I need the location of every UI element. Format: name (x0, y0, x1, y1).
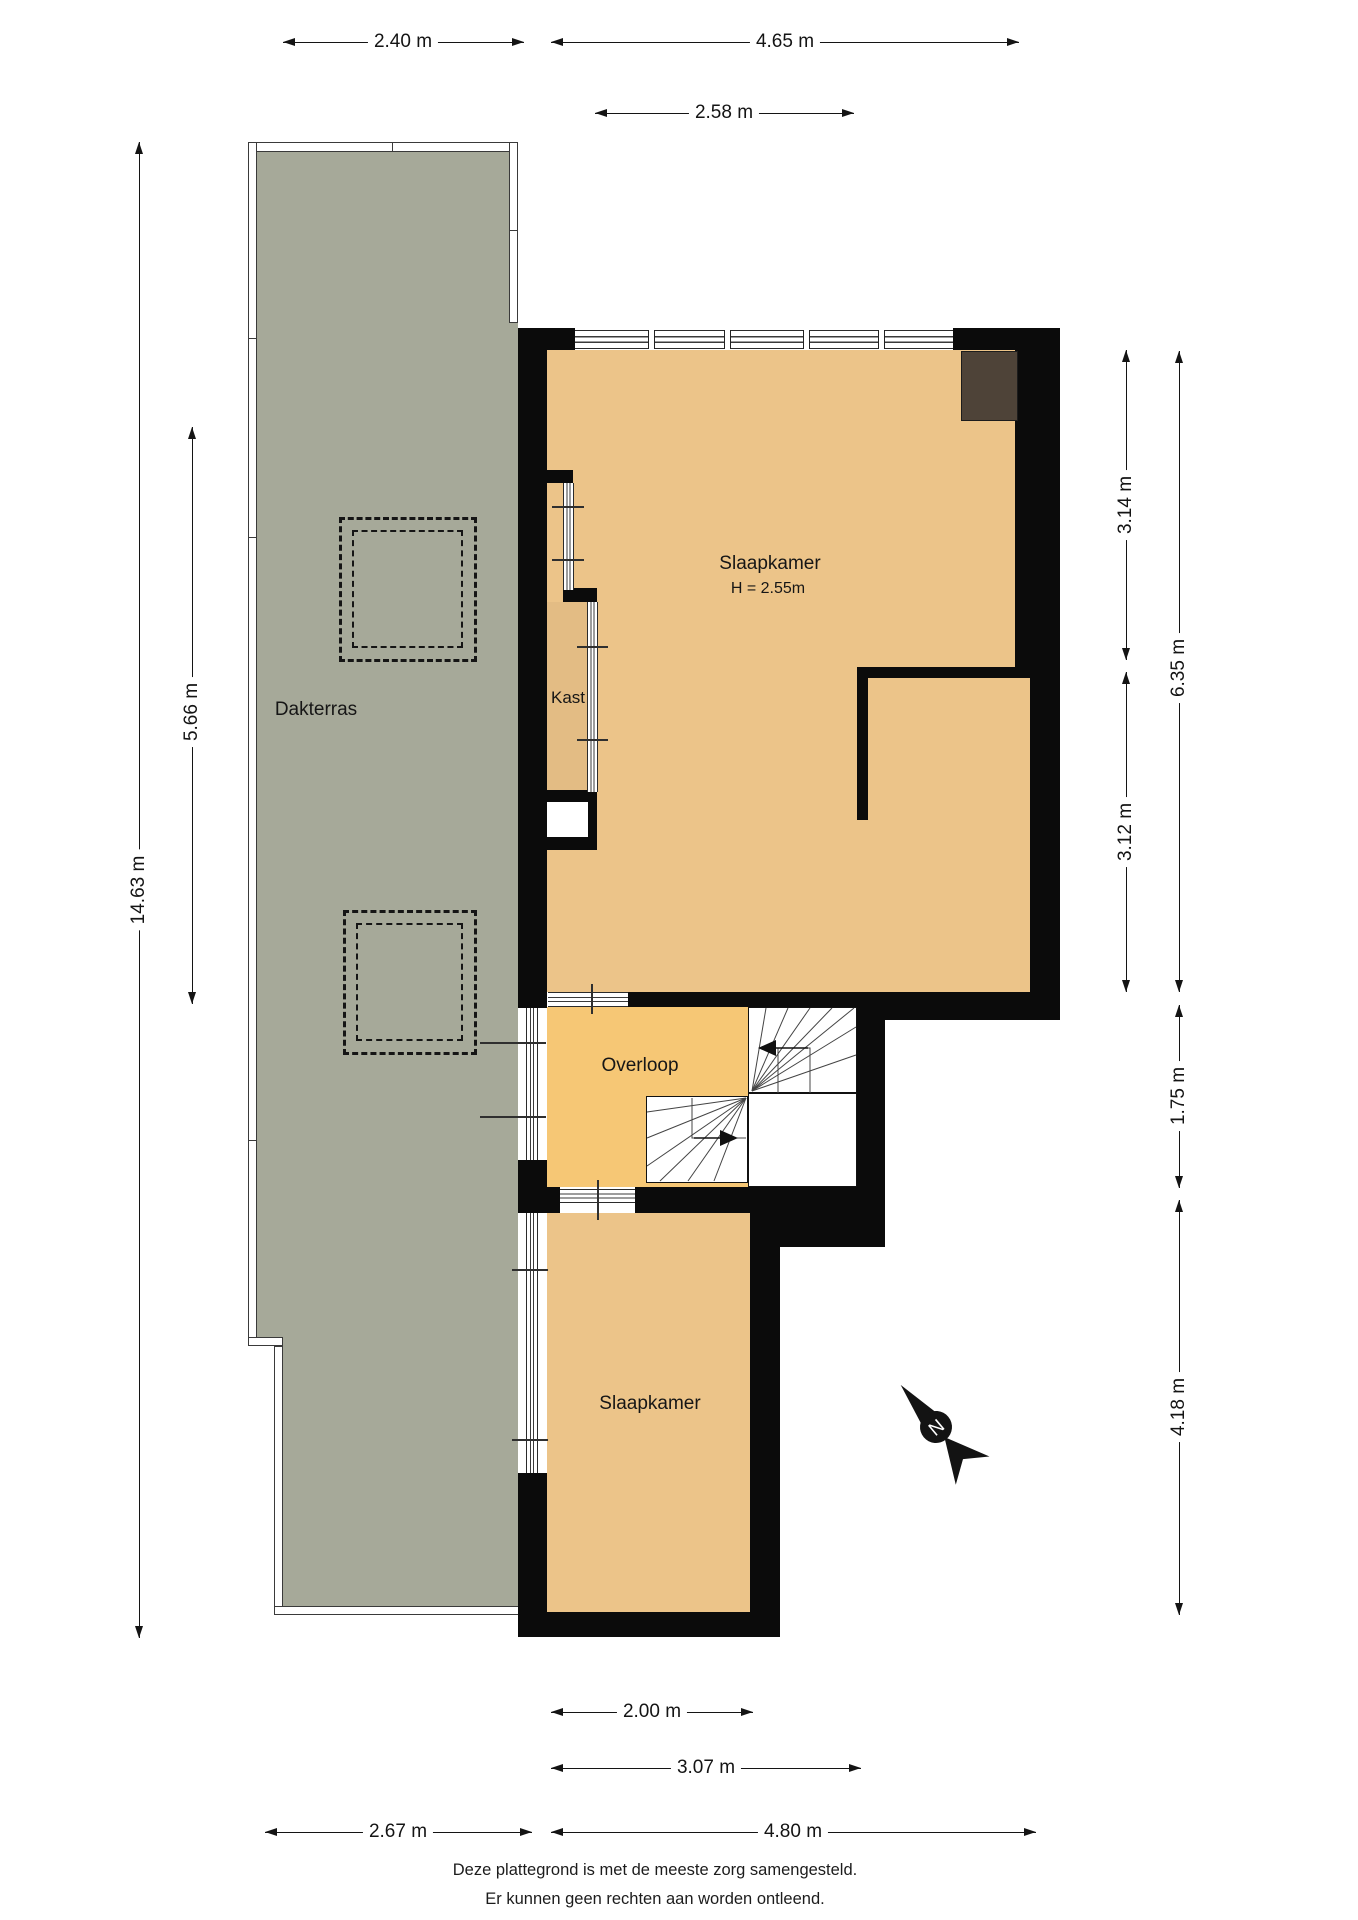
window-mullion (803, 330, 810, 349)
terrace-wall-right-upper (509, 142, 518, 323)
window-mullion (724, 330, 731, 349)
wall-interior-h (857, 667, 1030, 678)
room-label-slaapkamer-top: Slaapkamer (719, 553, 820, 575)
stair-landing (748, 1093, 857, 1187)
terrace-wall-bottom (274, 1606, 520, 1615)
footer-disclaimer-line2: Er kunnen geen rechten aan worden ontlee… (485, 1890, 824, 1909)
room-label-kast: Kast (551, 688, 585, 708)
wall-step-east (780, 1213, 885, 1247)
kast-sliding-door (587, 602, 598, 792)
dim-label: 3.12 m (1115, 797, 1137, 867)
dim-label: 6.35 m (1168, 633, 1190, 703)
footer-disclaimer-line1: Deze plattegrond is met de meeste zorg s… (453, 1861, 857, 1880)
terrace-wall-top (248, 142, 518, 152)
dim-label: 2.00 m (617, 1701, 687, 1723)
dim-label: 2.58 m (689, 102, 759, 124)
window-mullion (878, 330, 885, 349)
dim-label: 4.65 m (750, 31, 820, 53)
wall-stub-kast-top (563, 588, 597, 602)
dim-label: 3.14 m (1115, 470, 1137, 540)
wall-bedroom2-east (750, 1213, 780, 1637)
dim-label: 1.75 m (1168, 1061, 1190, 1131)
wall-bedroom-south-east (858, 992, 1060, 1020)
dakterras-floor (257, 152, 518, 1606)
terrace-wall-step-h (248, 1337, 283, 1346)
slaapkamer-top-floor-east (1015, 667, 1030, 992)
room-label-slaapkamer-bottom: Slaapkamer (599, 1393, 700, 1415)
wall-interior-v (857, 667, 868, 820)
stair-lower-treads (646, 1096, 748, 1183)
compass-north-icon: N (868, 1372, 1013, 1487)
dim-label: 2.67 m (363, 1821, 433, 1843)
dim-label: 5.66 m (181, 677, 203, 747)
stair-upper-treads (748, 1007, 857, 1093)
wall-bedroom-south (628, 992, 885, 1007)
bedroom-overloop-door (548, 992, 628, 1007)
terrace-dashed-square-1-inner (352, 530, 463, 648)
dim-label: 3.07 m (671, 1757, 741, 1779)
room-label-dakterras: Dakterras (275, 699, 357, 721)
window-mullion (648, 330, 655, 349)
dim-label: 14.63 m (128, 850, 150, 931)
wall-stub-kast-north (547, 470, 573, 483)
dim-label: 4.80 m (758, 1821, 828, 1843)
wall-west-upper (518, 328, 547, 1008)
wall-east-lower (1030, 667, 1060, 1020)
terrace-dashed-square-2-inner (356, 923, 463, 1041)
terrace-wall-left (248, 142, 257, 1346)
wall-stair-east (857, 992, 885, 1213)
floor-plan: Slaapkamer H = 2.55m Kast Dakterras Over… (0, 0, 1358, 1920)
room-height-label: H = 2.55m (731, 580, 805, 598)
terrace-wall-step-v (274, 1346, 283, 1615)
glass-partition-kast-north (563, 483, 574, 590)
window-bedroom-north (575, 330, 953, 349)
wall-top-left (518, 328, 575, 350)
fixed-object (962, 352, 1017, 420)
terrace-door (526, 1008, 538, 1160)
dakterras-floor-mask (257, 1346, 274, 1606)
dim-label: 2.40 m (368, 31, 438, 53)
dim-label: 4.18 m (1168, 1372, 1190, 1442)
wall-bedroom2-south (518, 1612, 780, 1637)
bedroom2-window (526, 1213, 538, 1473)
shaft-opening (547, 802, 588, 837)
wall-east-upper (1015, 328, 1060, 667)
room-label-overloop: Overloop (601, 1055, 678, 1077)
